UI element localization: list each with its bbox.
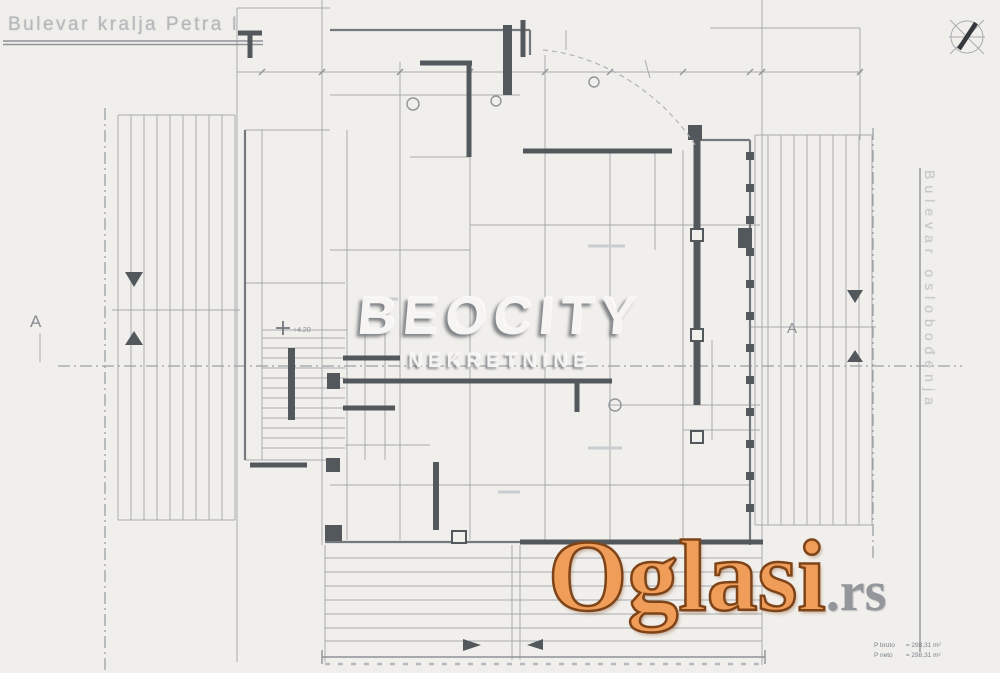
street-band-left [105, 108, 240, 672]
compass-icon [949, 20, 985, 54]
legend-label: P neto [874, 651, 904, 661]
area-legend: P bruto = 298,31 m² P neto = 298,31 m² [874, 641, 941, 661]
legend-row: P bruto = 298,31 m² [874, 641, 941, 651]
watermark-oglasi-tld: .rs [826, 561, 887, 623]
watermark-nekretnine: NEKRETNINE [0, 351, 1000, 373]
legend-row: P neto = 298,31 m² [874, 651, 941, 661]
watermark-oglasi-text: Oglasi [548, 520, 826, 633]
watermark-beocity: BEOCITY [0, 286, 1000, 347]
watermark-oglasi: Oglasi.rs [548, 518, 886, 635]
floorplan-image: A A [0, 0, 1000, 673]
legend-value: = 298,31 m² [906, 651, 941, 661]
legend-label: P bruto [874, 641, 904, 651]
curved-wall-arc [543, 30, 697, 148]
arrow-down-icon [125, 272, 143, 287]
legend-value: = 298,31 m² [906, 641, 941, 651]
street-label-top: Bulevar kralja Petra I [8, 14, 239, 36]
